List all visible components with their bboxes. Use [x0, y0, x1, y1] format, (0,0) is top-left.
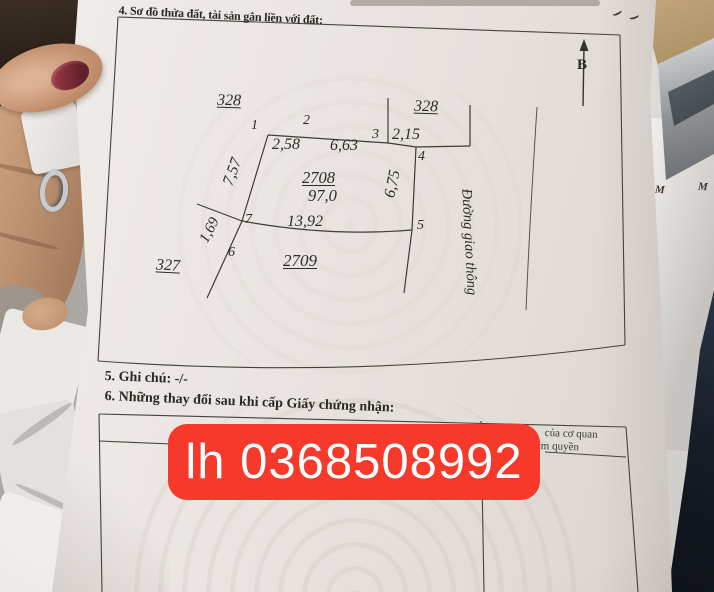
neighbor-parcel-328-right: 328 [414, 98, 439, 117]
red-watermark-badge: lh 0368508992 [168, 424, 540, 500]
neighbor-parcel-328-left: 328 [217, 92, 242, 111]
background-letter-fragment: M [655, 184, 666, 197]
vertex-label-4: 4 [418, 149, 425, 165]
neighbor-parcel-327: 327 [156, 256, 181, 275]
parcel-area-label: 97,0 [308, 186, 337, 206]
parcel-number-2709: 2709 [283, 251, 317, 271]
edge-length-3-4: 2,15 [392, 126, 420, 144]
photo-of-land-certificate: M M [0, 0, 714, 592]
vertex-label-2: 2 [303, 113, 310, 129]
table-header-fragment-line1: của cơ quan [545, 427, 598, 441]
section5-note: 5. Ghi chú: -/- [104, 369, 188, 388]
certificate-page: 4. Sơ đồ thửa đất, tài sản gắn liền với … [0, 0, 714, 592]
north-label: B [577, 57, 587, 74]
background-letter-fragment: M [698, 181, 709, 194]
vertex-label-7: 7 [245, 212, 252, 228]
vertex-label-3: 3 [372, 127, 379, 143]
edge-length-2-3: 6,63 [330, 137, 358, 155]
table-header-fragment-line2: m quyền [541, 440, 580, 453]
road-edge-line [526, 107, 537, 310]
edge-length-7-5: 13,92 [287, 213, 323, 231]
parcel-number-2708: 2708 [302, 168, 335, 188]
vertex-label-6: 6 [228, 245, 235, 261]
vertex-label-5: 5 [417, 218, 424, 234]
edge-length-1-2: 2,58 [272, 136, 300, 154]
vertex-label-1: 1 [251, 118, 258, 134]
watermark-text: lh 0368508992 [185, 434, 522, 490]
document-line-art [0, 0, 714, 592]
